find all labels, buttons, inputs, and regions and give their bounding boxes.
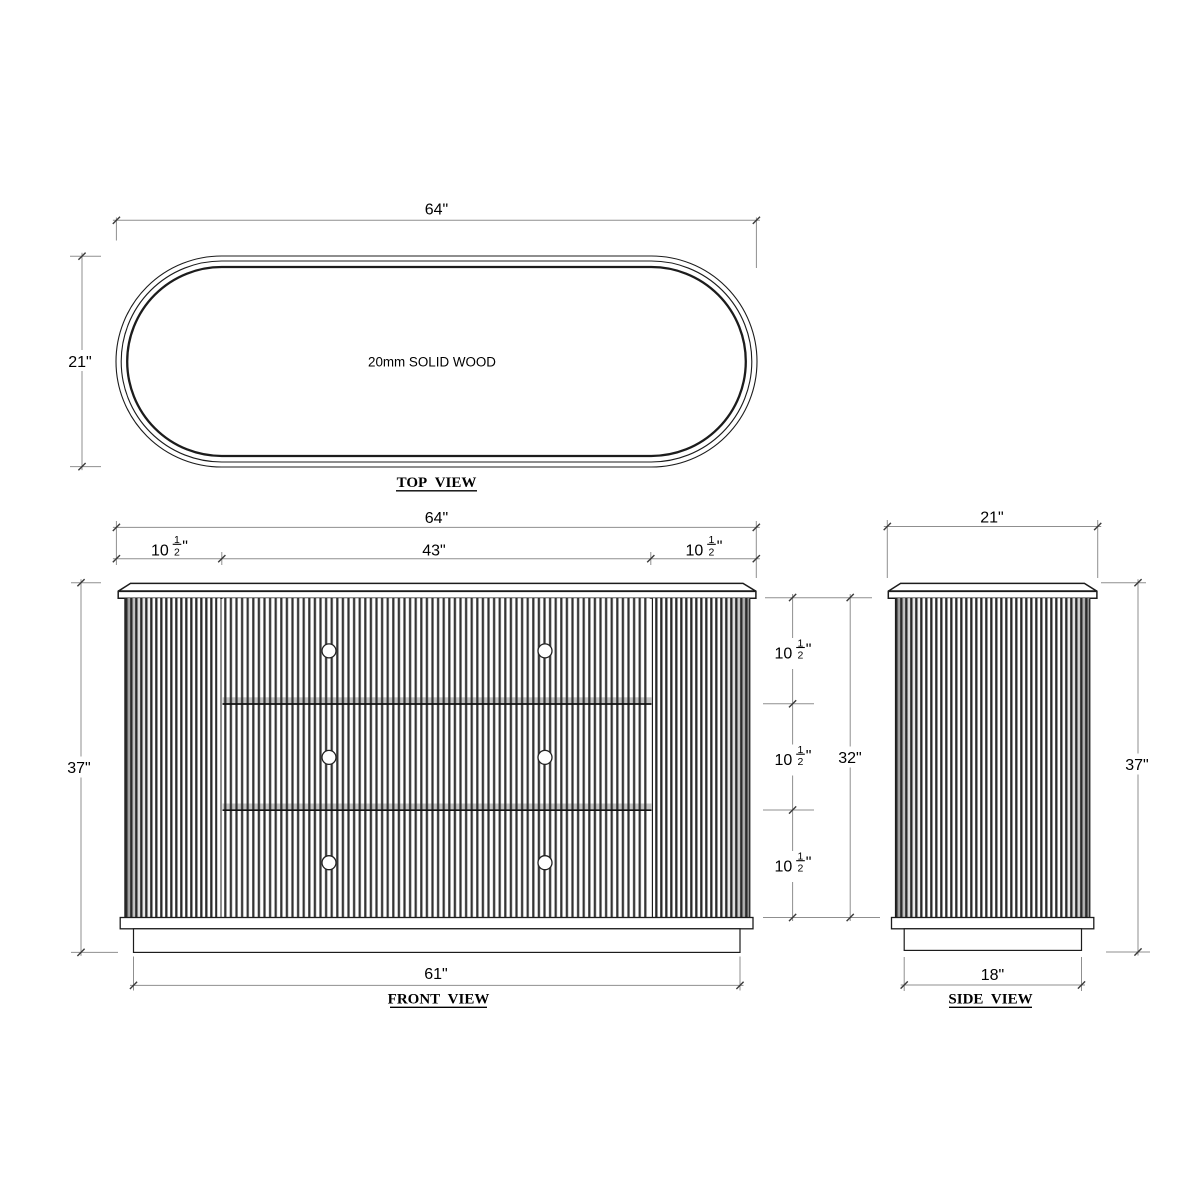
svg-text:10: 10 [775,752,793,769]
svg-text:18": 18" [981,967,1004,984]
svg-text:32": 32" [838,750,861,767]
svg-text:10: 10 [686,542,704,559]
svg-text:10: 10 [775,646,793,663]
svg-text:2: 2 [797,650,803,662]
svg-text:37": 37" [1125,757,1148,774]
svg-text:21": 21" [68,354,91,371]
svg-text:2: 2 [174,546,180,558]
svg-text:": " [806,748,812,765]
svg-text:64": 64" [425,510,448,527]
svg-text:": " [182,538,188,555]
svg-text:": " [717,538,723,555]
svg-text:43": 43" [422,542,445,559]
svg-text:10: 10 [151,542,169,559]
svg-text:2: 2 [708,546,714,558]
svg-text:": " [806,855,812,872]
svg-text:SIDE VIEW: SIDE VIEW [948,992,1032,1008]
svg-text:64": 64" [425,202,448,219]
svg-text:20mm SOLID WOOD: 20mm SOLID WOOD [368,354,496,369]
svg-text:2: 2 [797,756,803,768]
svg-text:TOP VIEW: TOP VIEW [397,475,477,491]
svg-text:10: 10 [775,859,793,876]
svg-text:2: 2 [797,863,803,875]
svg-text:FRONT VIEW: FRONT VIEW [388,992,490,1008]
svg-text:37": 37" [67,760,90,777]
svg-text:61": 61" [424,966,447,983]
svg-text:21": 21" [980,509,1003,526]
svg-text:": " [806,642,812,659]
